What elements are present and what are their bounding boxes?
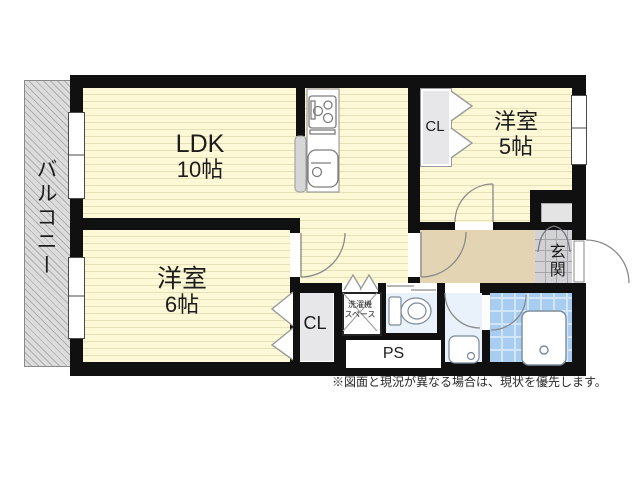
doorway-bedroom6 [290, 233, 300, 277]
doorway-toilet [386, 283, 437, 293]
doorway-hall [408, 233, 420, 277]
ldk-name-label: LDK [120, 131, 280, 157]
bedroom6-name-label: 洋室 [102, 266, 262, 292]
ps-box: PS [342, 336, 445, 372]
doorway-entrance [572, 240, 586, 283]
window-ldk [68, 112, 85, 199]
room-ldk-corridor [300, 222, 408, 283]
closet-lower-label: CL [296, 314, 334, 333]
wall-ldk-bedroom6 [70, 218, 300, 230]
wall-bedroom5-hall [420, 222, 572, 230]
washer-space-label-line1: 洗濯機 [342, 300, 378, 310]
wall-bottom [70, 362, 586, 376]
balcony-label: バルコニー [34, 158, 56, 278]
closet-upper-label: CL [420, 119, 450, 135]
doorway-bedroom5 [455, 222, 493, 230]
wall-kitchen-stub [296, 88, 305, 136]
bedroom5-name-label: 洋室 [436, 110, 596, 133]
floorplan-canvas: PS [0, 0, 640, 480]
window-bedroom6 [68, 257, 85, 339]
ldk-size-label: 10帖 [120, 158, 280, 181]
toilet-room [384, 290, 437, 333]
wall-top [70, 75, 586, 88]
ps-label: PS [383, 345, 404, 363]
entrance-label: 玄関 [546, 243, 563, 279]
entrance-step [541, 203, 574, 224]
bedroom5-size-label: 5帖 [436, 135, 596, 158]
wall-closet-washer [334, 283, 342, 362]
bathroom [490, 290, 572, 362]
wall-entrance-left [530, 203, 541, 225]
door-arc-entrance [586, 240, 629, 283]
doorway-bathroom [482, 295, 490, 330]
hallway [420, 230, 535, 283]
doorway-washbasin [445, 283, 480, 293]
wall-entrance-top [530, 190, 572, 203]
washbasin-room [445, 290, 482, 362]
disclaimer-note: ※図面と現況が異なる場合は、現状を優先します。 [332, 376, 592, 389]
bedroom6-size-label: 6帖 [102, 293, 262, 316]
washer-space-label-line2: スペース [342, 310, 378, 320]
